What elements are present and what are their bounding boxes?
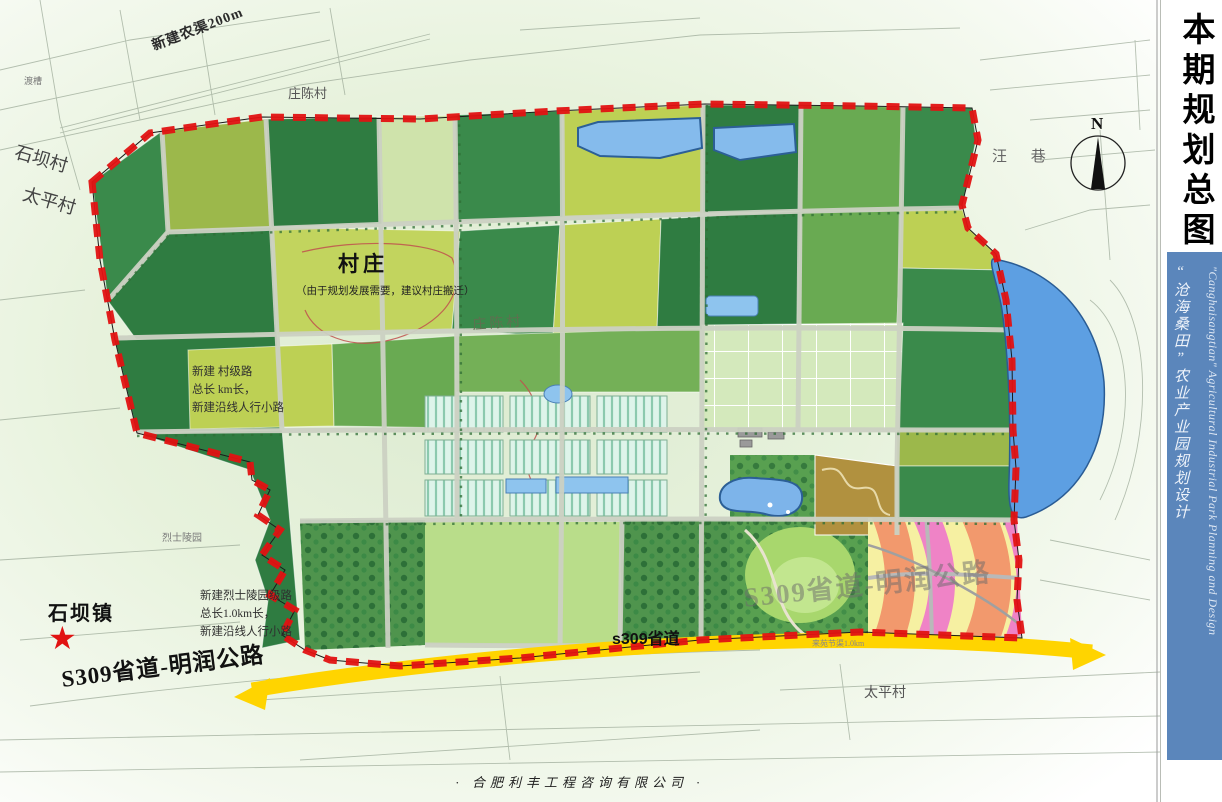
greenhouse-blocks bbox=[425, 396, 667, 516]
project-title-cn: “沧海桑田”农业产业园规划设计 bbox=[1170, 264, 1191, 521]
label-road-note-mid: 新建 村级路 总长 km长， 新建沿线人行小路 bbox=[192, 364, 284, 417]
central-pond bbox=[720, 478, 802, 516]
label-aqueduct: 渡槽 bbox=[24, 76, 42, 87]
plan-map: 新建农渠200m 渡槽 庄陈村 石坝村 太平村 汪 巷 村庄 （由于规划发展需要… bbox=[0, 0, 1160, 802]
design-firm-credit: · 合肥利丰工程咨询有限公司 · bbox=[0, 772, 1160, 791]
project-title-en: "Canghaisangtian" Agricultural Industria… bbox=[1205, 266, 1220, 636]
project-banner: “沧海桑田”农业产业园规划设计 "Canghaisangtian" Agricu… bbox=[1167, 252, 1222, 760]
compass-north-label: N bbox=[1091, 114, 1103, 134]
label-village-cluster-title: 村庄 bbox=[338, 252, 388, 277]
label-martyr-cemetery: 烈士陵园 bbox=[162, 533, 202, 545]
label-village-cluster-note: （由于规划发展需要，建议村庄搬迁） bbox=[296, 286, 475, 299]
label-road-note-south: 新建烈士陵园级路 总长1.0km长， 新建沿线人行小路 bbox=[200, 588, 292, 641]
label-zhuangchen-mid: 庄陈村 bbox=[472, 314, 524, 334]
label-taiping-bottom: 太平村 bbox=[864, 686, 906, 703]
label-canal-bottom: 来苑节渠1.0km bbox=[812, 639, 864, 649]
sheet-title: 本期规划总图 bbox=[1171, 12, 1219, 252]
plan-map-canvas bbox=[0, 0, 1160, 802]
town-star-icon: ★ bbox=[48, 622, 77, 654]
label-s309-band: s309省道 bbox=[612, 630, 680, 649]
label-wangxiang: 汪 巷 bbox=[992, 148, 1056, 166]
plan-sheet: 新建农渠200m 渡槽 庄陈村 石坝村 太平村 汪 巷 村庄 （由于规划发展需要… bbox=[0, 0, 1222, 802]
title-strip: 本期规划总图 “沧海桑田”农业产业园规划设计 "Canghaisangtian"… bbox=[1160, 0, 1222, 802]
label-zhuangchen-top: 庄陈村 bbox=[288, 86, 327, 102]
